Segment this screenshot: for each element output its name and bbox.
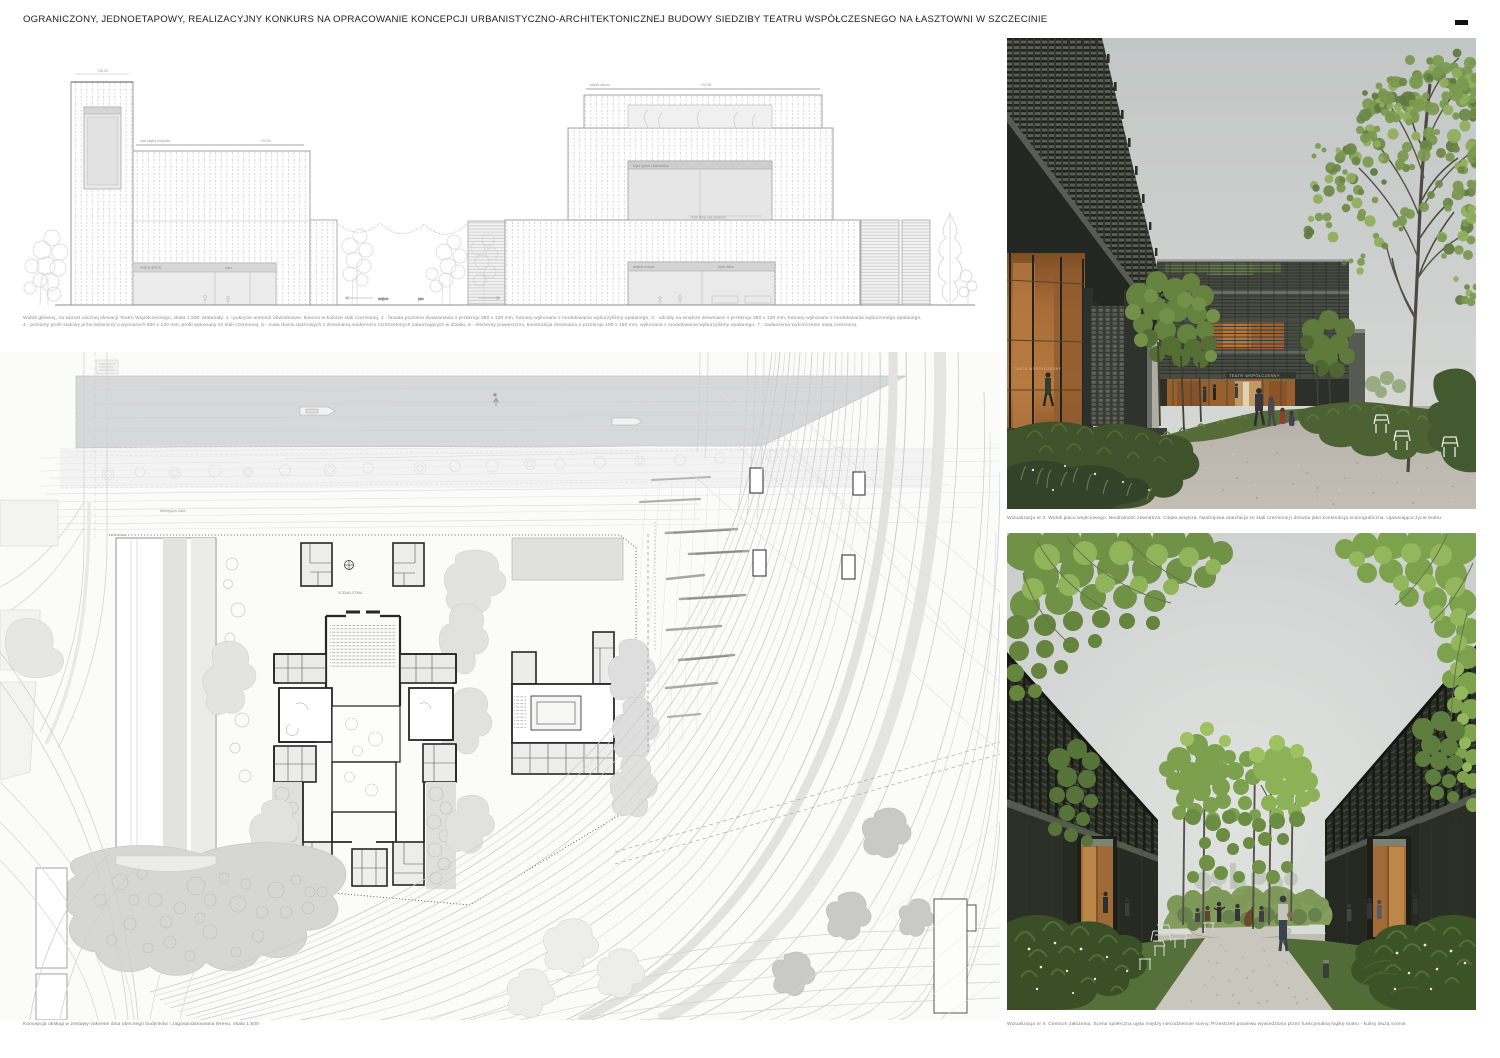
svg-text:TEATR WSPÓŁCZESNY: TEATR WSPÓŁCZESNY	[1229, 373, 1280, 378]
svg-text:plac: plac	[418, 297, 424, 301]
svg-text:N: N	[494, 392, 497, 397]
svg-text:foyer górne i kameralna: foyer górne i kameralna	[633, 164, 669, 168]
svg-text:wejście boczne: wejście boczne	[633, 265, 655, 269]
svg-text:foyer: foyer	[225, 266, 233, 270]
svg-text:wejście: wejście	[378, 297, 389, 301]
svg-text:+24,35: +24,35	[700, 83, 711, 87]
svg-text:SCENA LETNIA: SCENA LETNIA	[338, 591, 363, 595]
svg-text:+6,00 strop nad parterem: +6,00 strop nad parterem	[690, 216, 726, 220]
svg-text:attyka dachu: attyka dachu	[590, 83, 610, 87]
svg-text:wejście główne: wejście główne	[140, 266, 162, 270]
svg-text:TEATR WSPÓŁCZESNY: TEATR WSPÓŁCZESNY	[1014, 366, 1062, 371]
svg-text:nad attyką budynku: nad attyką budynku	[140, 139, 170, 143]
svg-text:istniejąca hala: istniejąca hala	[160, 508, 186, 513]
svg-text:+28,00: +28,00	[97, 69, 108, 73]
svg-text:+20,00: +20,00	[260, 139, 271, 143]
svg-text:foyer dolne: foyer dolne	[718, 265, 734, 269]
